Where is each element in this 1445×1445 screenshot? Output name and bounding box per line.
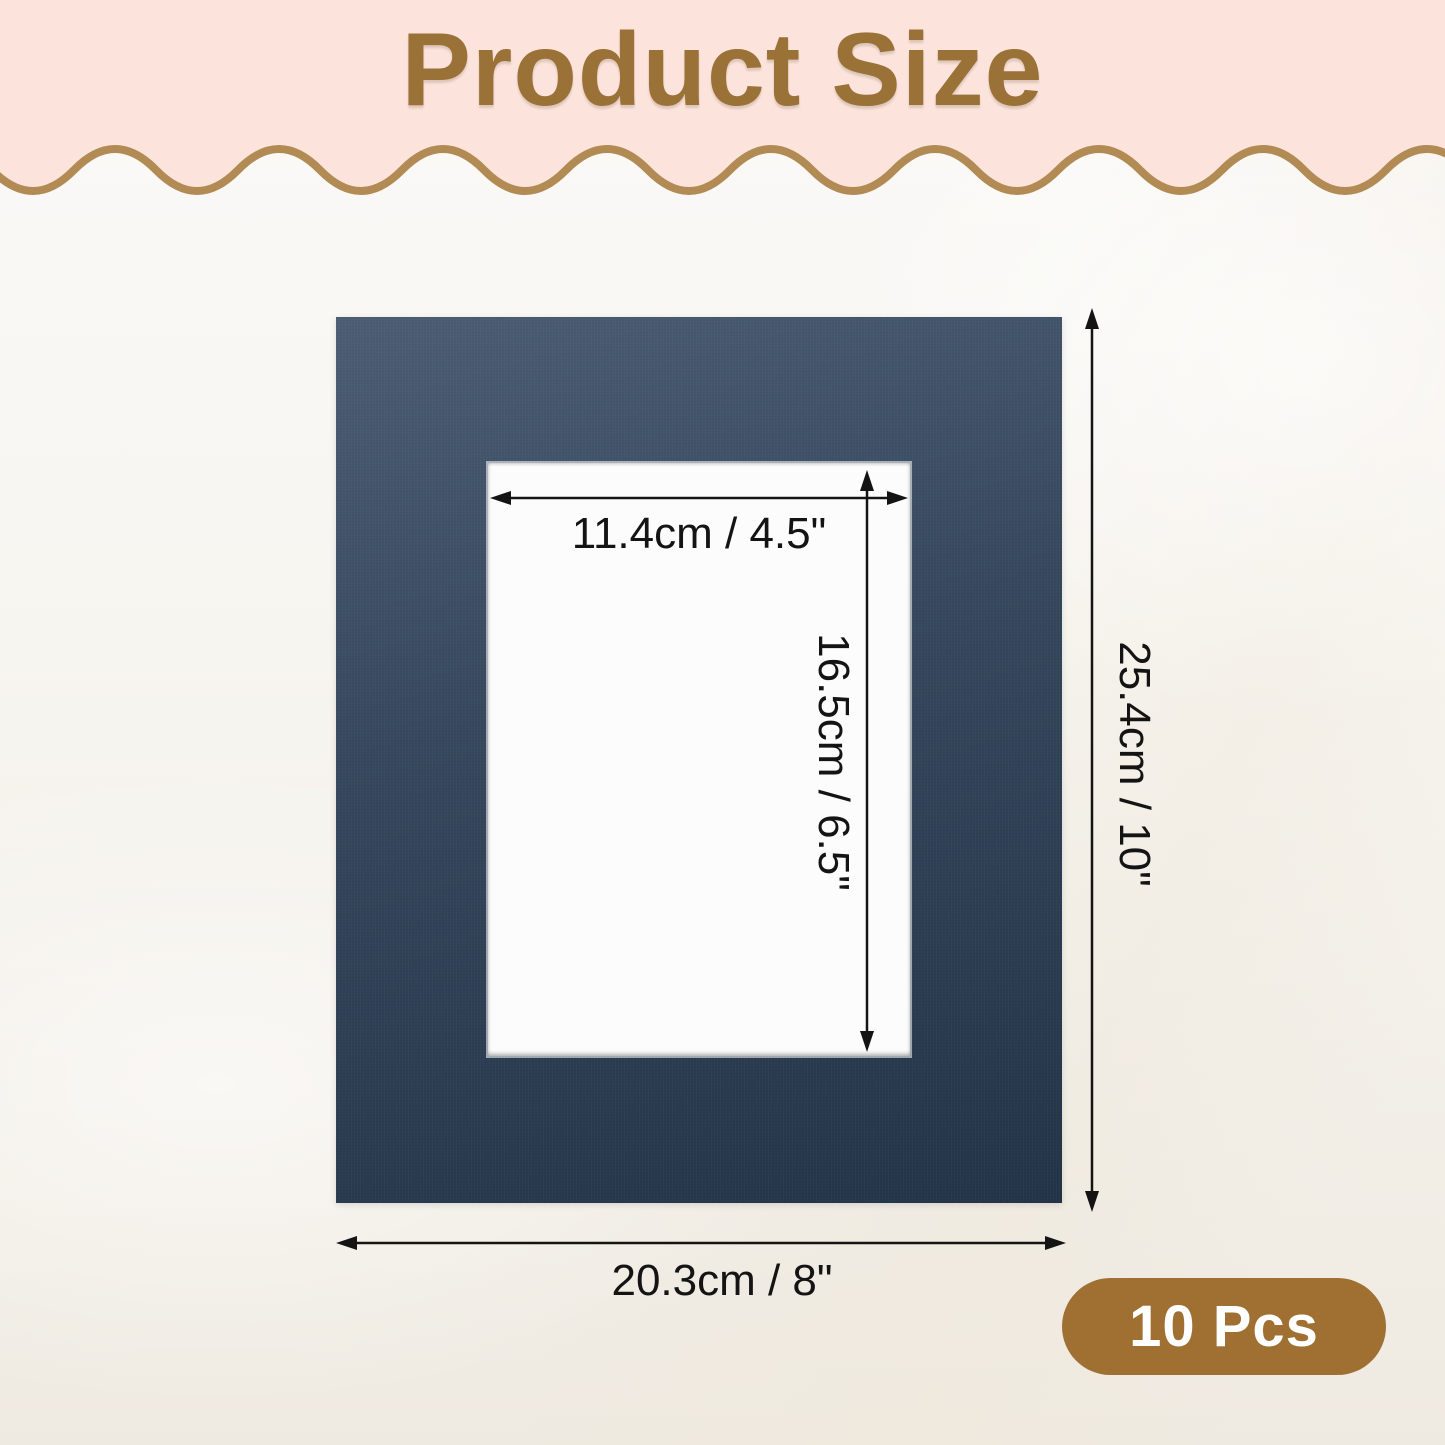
arrowhead-left-icon (336, 1236, 357, 1250)
arrowhead-up-icon (1085, 308, 1099, 329)
mat-width-label: 20.3cm / 8" (611, 1256, 832, 1306)
arrowhead-right-icon (1045, 1236, 1066, 1250)
mat-height-arrow (1080, 308, 1104, 1212)
opening-width-label: 11.4cm / 4.5" (572, 509, 826, 559)
arrowhead-right-icon (887, 491, 908, 505)
arrowhead-up-icon (860, 470, 874, 491)
mat-height-label: 25.4cm / 10" (1109, 641, 1159, 887)
opening-height-label: 16.5cm / 6.5" (808, 633, 858, 891)
arrowhead-left-icon (490, 491, 511, 505)
arrowhead-down-icon (1085, 1191, 1099, 1212)
quantity-badge-label: 10 Pcs (1129, 1293, 1319, 1360)
arrowhead-down-icon (860, 1031, 874, 1052)
page-title: Product Size (0, 16, 1445, 124)
mat-width-arrow (336, 1231, 1066, 1255)
opening-height-arrow (855, 470, 879, 1052)
quantity-badge: 10 Pcs (1062, 1278, 1386, 1375)
product-size-infographic: Product Size 11.4cm / 4.5" 16.5cm / 6.5"… (0, 0, 1445, 1445)
opening-width-arrow (490, 486, 908, 510)
